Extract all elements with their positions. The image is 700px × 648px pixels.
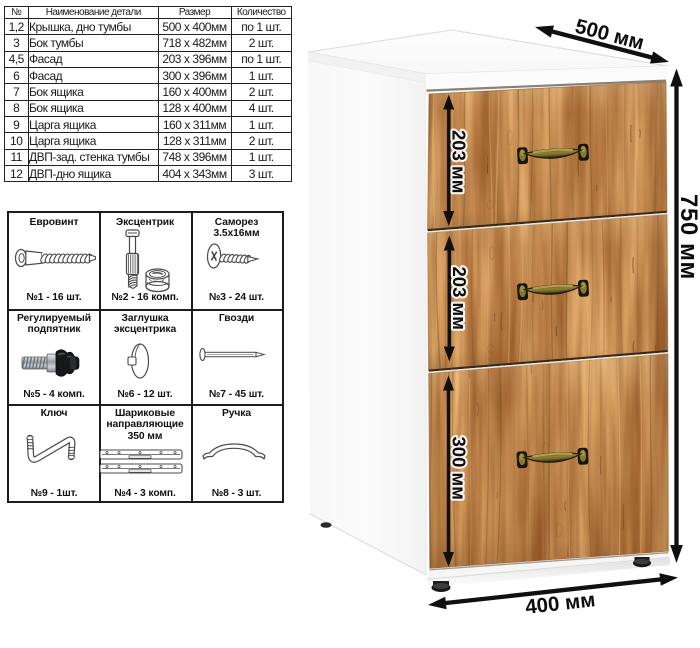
svg-text:203 мм: 203 мм [449, 267, 470, 330]
svg-text:300 мм: 300 мм [449, 437, 470, 500]
svg-text:750 мм: 750 мм [675, 194, 700, 280]
svg-text:203 мм: 203 мм [449, 130, 470, 193]
